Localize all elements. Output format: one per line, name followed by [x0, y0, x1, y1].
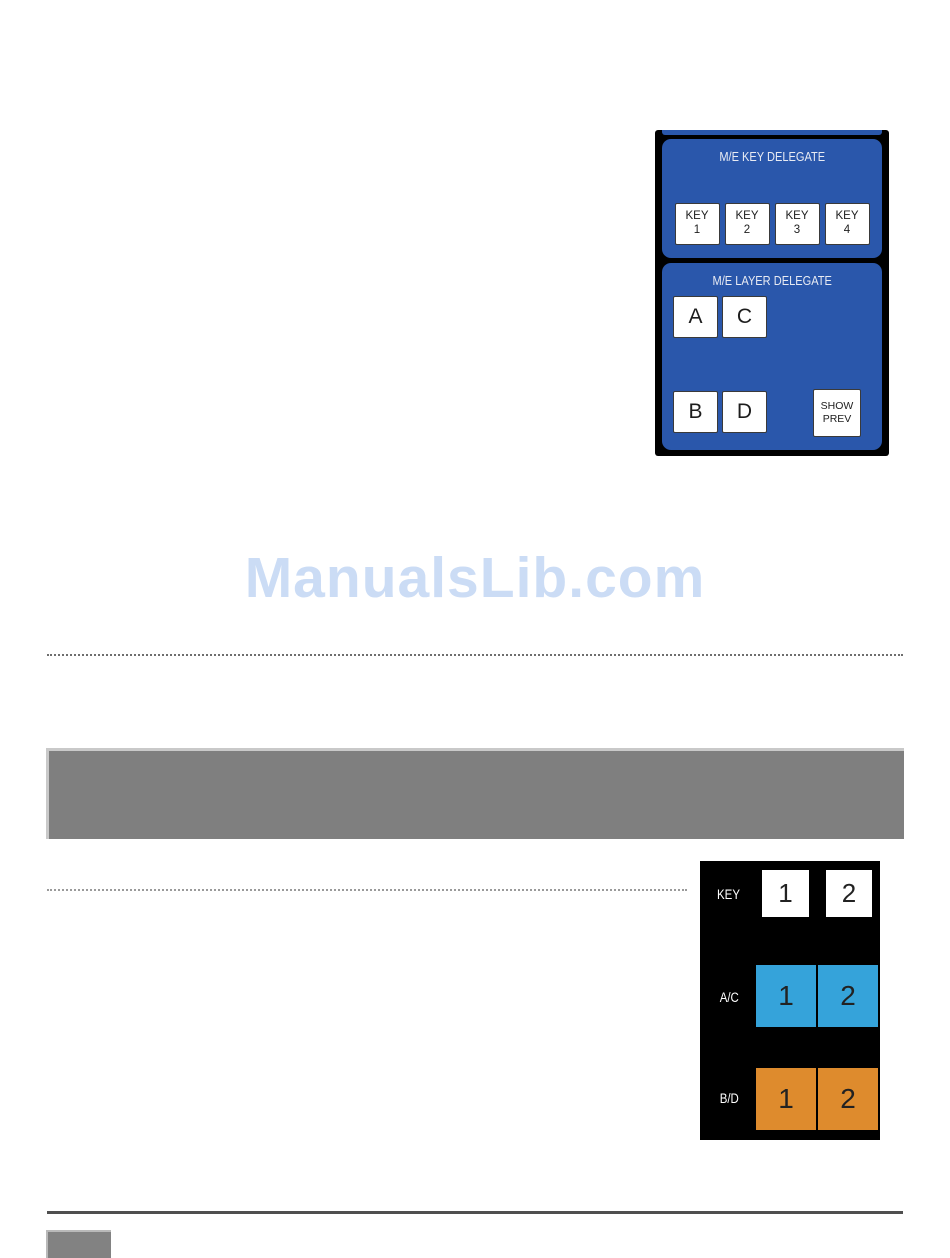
layer-c-button: C — [722, 296, 767, 338]
bd-row-label: B/D — [700, 1091, 758, 1106]
layer-a-button: A — [673, 296, 718, 338]
dotted-divider-bottom — [47, 889, 687, 891]
footer-rule — [47, 1211, 903, 1214]
show-prev-button: SHOW PREV — [813, 389, 861, 437]
me-layer-delegate-panel: M/E LAYER DELEGATE A C B D SHOW PREV — [662, 263, 882, 450]
key-4-button: KEY 4 — [825, 203, 870, 245]
footer-gray-block — [46, 1230, 111, 1258]
bd-bus-2-button: 2 — [818, 1068, 878, 1130]
key-bus-2-button: 2 — [826, 870, 872, 917]
ac-row-label: A/C — [700, 990, 758, 1005]
me-layer-delegate-title: M/E LAYER DELEGATE — [662, 273, 882, 288]
dotted-divider-top — [47, 654, 903, 656]
key-1-button: KEY 1 — [675, 203, 720, 245]
ac-bus-1-button: 1 — [756, 965, 816, 1027]
key-2-button: KEY 2 — [725, 203, 770, 245]
bus-select-figure: KEY 1 2 A/C 1 2 B/D 1 2 — [700, 861, 880, 1140]
ac-bus-2-button: 2 — [818, 965, 878, 1027]
me-delegate-figure: M/E KEY DELEGATE KEY 1 KEY 2 KEY 3 KEY 4… — [655, 130, 889, 456]
me-key-delegate-panel: M/E KEY DELEGATE KEY 1 KEY 2 KEY 3 KEY 4 — [662, 139, 882, 258]
key-bus-1-button: 1 — [762, 870, 809, 917]
section-header-banner — [46, 748, 904, 839]
me-key-delegate-title: M/E KEY DELEGATE — [662, 149, 882, 164]
bd-bus-1-button: 1 — [756, 1068, 816, 1130]
manualslib-watermark: ManualsLib.com — [0, 545, 950, 611]
layer-b-button: B — [673, 391, 718, 433]
layer-d-button: D — [722, 391, 767, 433]
key-delegate-button-row: KEY 1 KEY 2 KEY 3 KEY 4 — [662, 203, 882, 245]
cropped-panel-edge — [662, 130, 882, 135]
key-3-button: KEY 3 — [775, 203, 820, 245]
key-row-label: KEY — [700, 887, 758, 902]
manual-page: M/E KEY DELEGATE KEY 1 KEY 2 KEY 3 KEY 4… — [0, 0, 950, 1258]
